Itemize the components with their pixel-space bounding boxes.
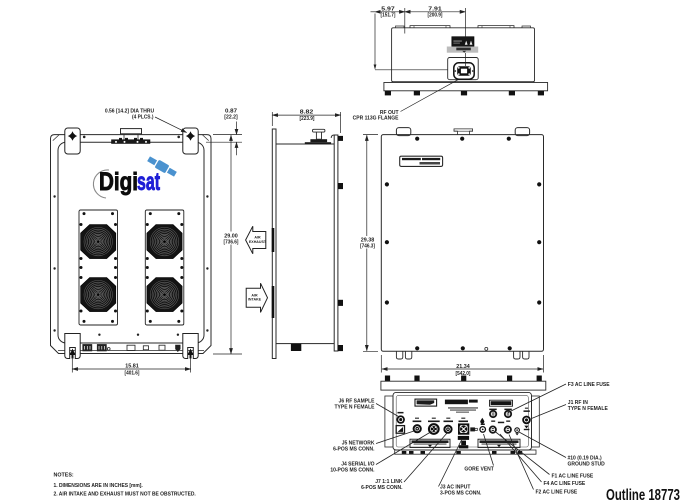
svg-text:F3 AC LINE FUSE: F3 AC LINE FUSE xyxy=(568,382,610,388)
svg-text:TYPE N FEMALE: TYPE N FEMALE xyxy=(568,406,609,412)
svg-text:[151.7]: [151.7] xyxy=(381,13,396,19)
svg-text:[223.9]: [223.9] xyxy=(300,116,315,122)
svg-text:[22.2]: [22.2] xyxy=(224,115,238,121)
svg-text:INTAKE: INTAKE xyxy=(248,298,262,302)
svg-text:sat: sat xyxy=(137,168,160,196)
svg-text:2. AIR INTAKE AND EXHAUST MUST: 2. AIR INTAKE AND EXHAUST MUST NOT BE OB… xyxy=(54,492,197,498)
svg-text:F2 AC LINE FUSE: F2 AC LINE FUSE xyxy=(536,490,578,496)
svg-text:F4 AC LINE FUSE: F4 AC LINE FUSE xyxy=(544,481,586,487)
svg-text:(4 PLCS.): (4 PLCS.) xyxy=(132,115,154,121)
svg-text:F1 AC LINE FUSE: F1 AC LINE FUSE xyxy=(552,474,594,480)
svg-text:21.34: 21.34 xyxy=(456,364,470,370)
svg-text:EXHAUST: EXHAUST xyxy=(249,240,267,244)
svg-text:Outline 18773: Outline 18773 xyxy=(606,487,680,502)
svg-text:3-POS MS CONN.: 3-POS MS CONN. xyxy=(440,490,482,496)
svg-text:GROUND STUD: GROUND STUD xyxy=(568,461,606,467)
svg-text:Digi: Digi xyxy=(99,168,138,196)
svg-text:[200.9]: [200.9] xyxy=(428,13,443,19)
svg-text:6-POS MS CONN.: 6-POS MS CONN. xyxy=(361,485,403,491)
svg-text:0.56 [14.2] DIA THRU: 0.56 [14.2] DIA THRU xyxy=(105,108,155,114)
svg-text:[401.6]: [401.6] xyxy=(125,370,140,376)
svg-text:CPR 113G FLANGE: CPR 113G FLANGE xyxy=(353,116,400,122)
svg-text:10-POS MS CONN.: 10-POS MS CONN. xyxy=(330,468,375,474)
svg-text:8.82: 8.82 xyxy=(300,110,314,116)
svg-text:[746.3]: [746.3] xyxy=(360,243,375,249)
svg-text:1. DIMENSIONS ARE IN INCHES [m: 1. DIMENSIONS ARE IN INCHES [mm]. xyxy=(54,483,144,489)
svg-text:6-POS MS CONN.: 6-POS MS CONN. xyxy=(333,447,375,453)
svg-text:GORE VENT: GORE VENT xyxy=(464,467,493,473)
svg-text:15.81: 15.81 xyxy=(125,363,139,369)
svg-text:TYPE N FEMALE: TYPE N FEMALE xyxy=(334,405,375,411)
svg-text:[736.6]: [736.6] xyxy=(224,239,239,245)
svg-text:0.87: 0.87 xyxy=(225,108,237,114)
svg-text:NOTES:: NOTES: xyxy=(54,472,74,478)
